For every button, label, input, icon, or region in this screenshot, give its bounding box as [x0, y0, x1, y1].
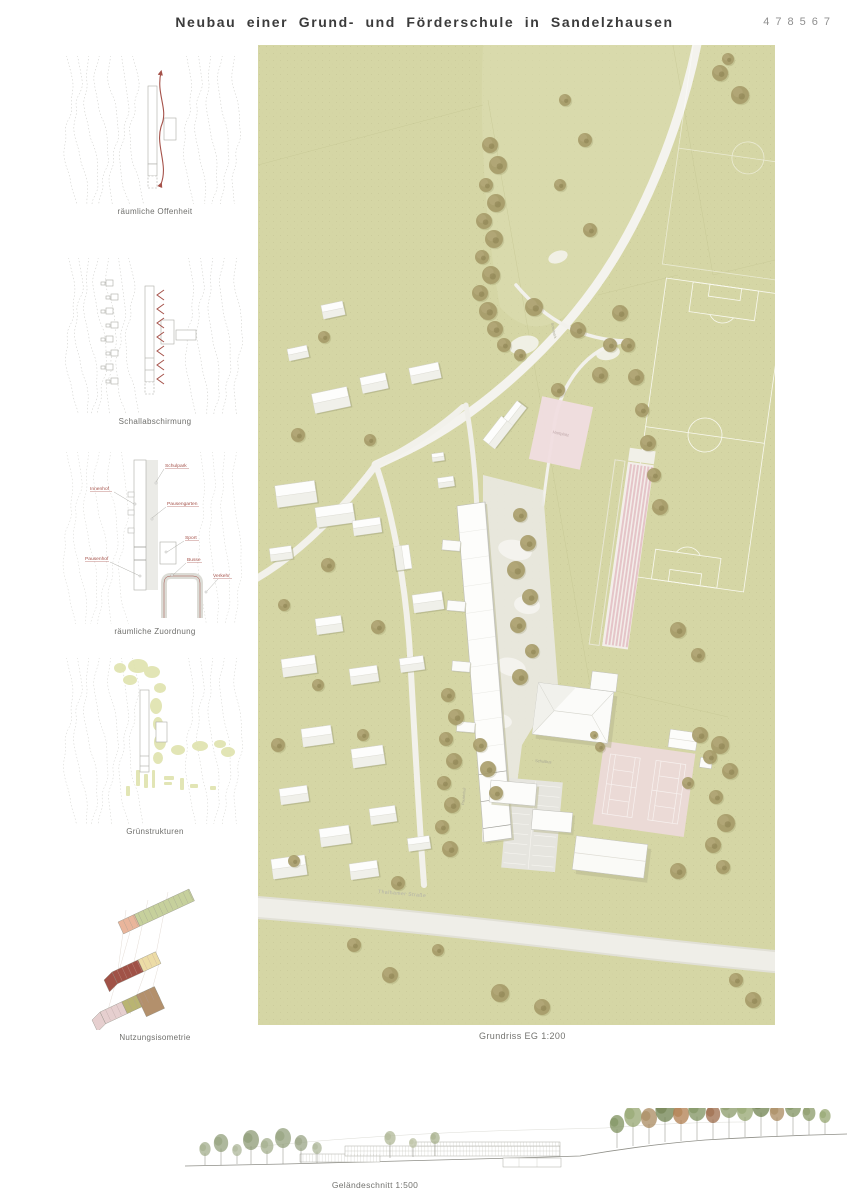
diagram-caption: räumliche Offenheit: [60, 207, 250, 216]
annotation-verkehr: Verkehr: [213, 573, 230, 579]
board-title: Neubau einer Grund- und Förderschule in …: [0, 14, 849, 30]
house: [437, 476, 456, 490]
annotation-schulpark: Schulpark: [165, 463, 187, 469]
upper-floor-plate: [118, 889, 195, 934]
ground-floor-plate: [92, 987, 165, 1030]
diagram-nutzungsisometrie: Nutzungsisometrie: [60, 872, 250, 1042]
annotation-pausenhof: Pausenhof: [85, 556, 109, 562]
diagram-drawing-openness: [60, 56, 250, 204]
competition-board: Neubau einer Grund- und Förderschule in …: [0, 0, 849, 1200]
diagram-drawing-zoning: Schulpark Innenhof Pausengarten Sport Pa…: [60, 452, 250, 624]
annotation-sport: Sport: [185, 535, 197, 541]
plan-caption: Grundriss EG 1:200: [479, 1031, 566, 1041]
air-flow-arrow: [160, 72, 164, 184]
section-caption: Geländeschnitt 1:500: [255, 1180, 495, 1190]
house: [392, 545, 412, 573]
middle-floor-plate: [104, 952, 161, 992]
annotation-pausengarten: Pausengarten: [167, 501, 198, 507]
project-number: 478567: [763, 16, 836, 28]
green-structures: [114, 659, 235, 796]
building-elevation: [300, 1142, 561, 1167]
diagram-caption: Schallabschirmung: [60, 417, 250, 426]
diagram-drawing-isometric: [60, 872, 250, 1030]
diagram-caption: Nutzungsisometrie: [60, 1033, 250, 1042]
diagram-drawing-green: [60, 658, 250, 824]
diagram-gruenstrukturen: Grünstrukturen: [60, 658, 250, 836]
diagram-drawing-sound: [60, 258, 250, 414]
diagram-schallabschirmung: Schallabschirmung: [60, 258, 250, 426]
diagram-caption: Grünstrukturen: [60, 827, 250, 836]
annotation-innenhof: Innenhof: [90, 486, 110, 492]
tennis-courts: [593, 741, 696, 837]
section-drawing: [185, 1108, 847, 1178]
diagram-raeumliche-zuordnung: Schulpark Innenhof Pausengarten Sport Pa…: [60, 452, 250, 636]
annotation-busse: Busse: [187, 557, 201, 563]
annotation-leader-lines: [110, 469, 218, 593]
zoning-annotations: Schulpark Innenhof Pausengarten Sport Pa…: [85, 463, 232, 579]
terrain-section-panel: [185, 1108, 847, 1178]
site-plan-panel: Hartplatz: [258, 45, 775, 1025]
section-trees: [199, 1108, 830, 1165]
diagram-raeumliche-offenheit: räumliche Offenheit: [60, 56, 250, 216]
house: [432, 452, 447, 463]
site-plan-drawing: Hartplatz: [258, 45, 775, 1025]
diagram-caption: räumliche Zuordnung: [60, 627, 250, 636]
